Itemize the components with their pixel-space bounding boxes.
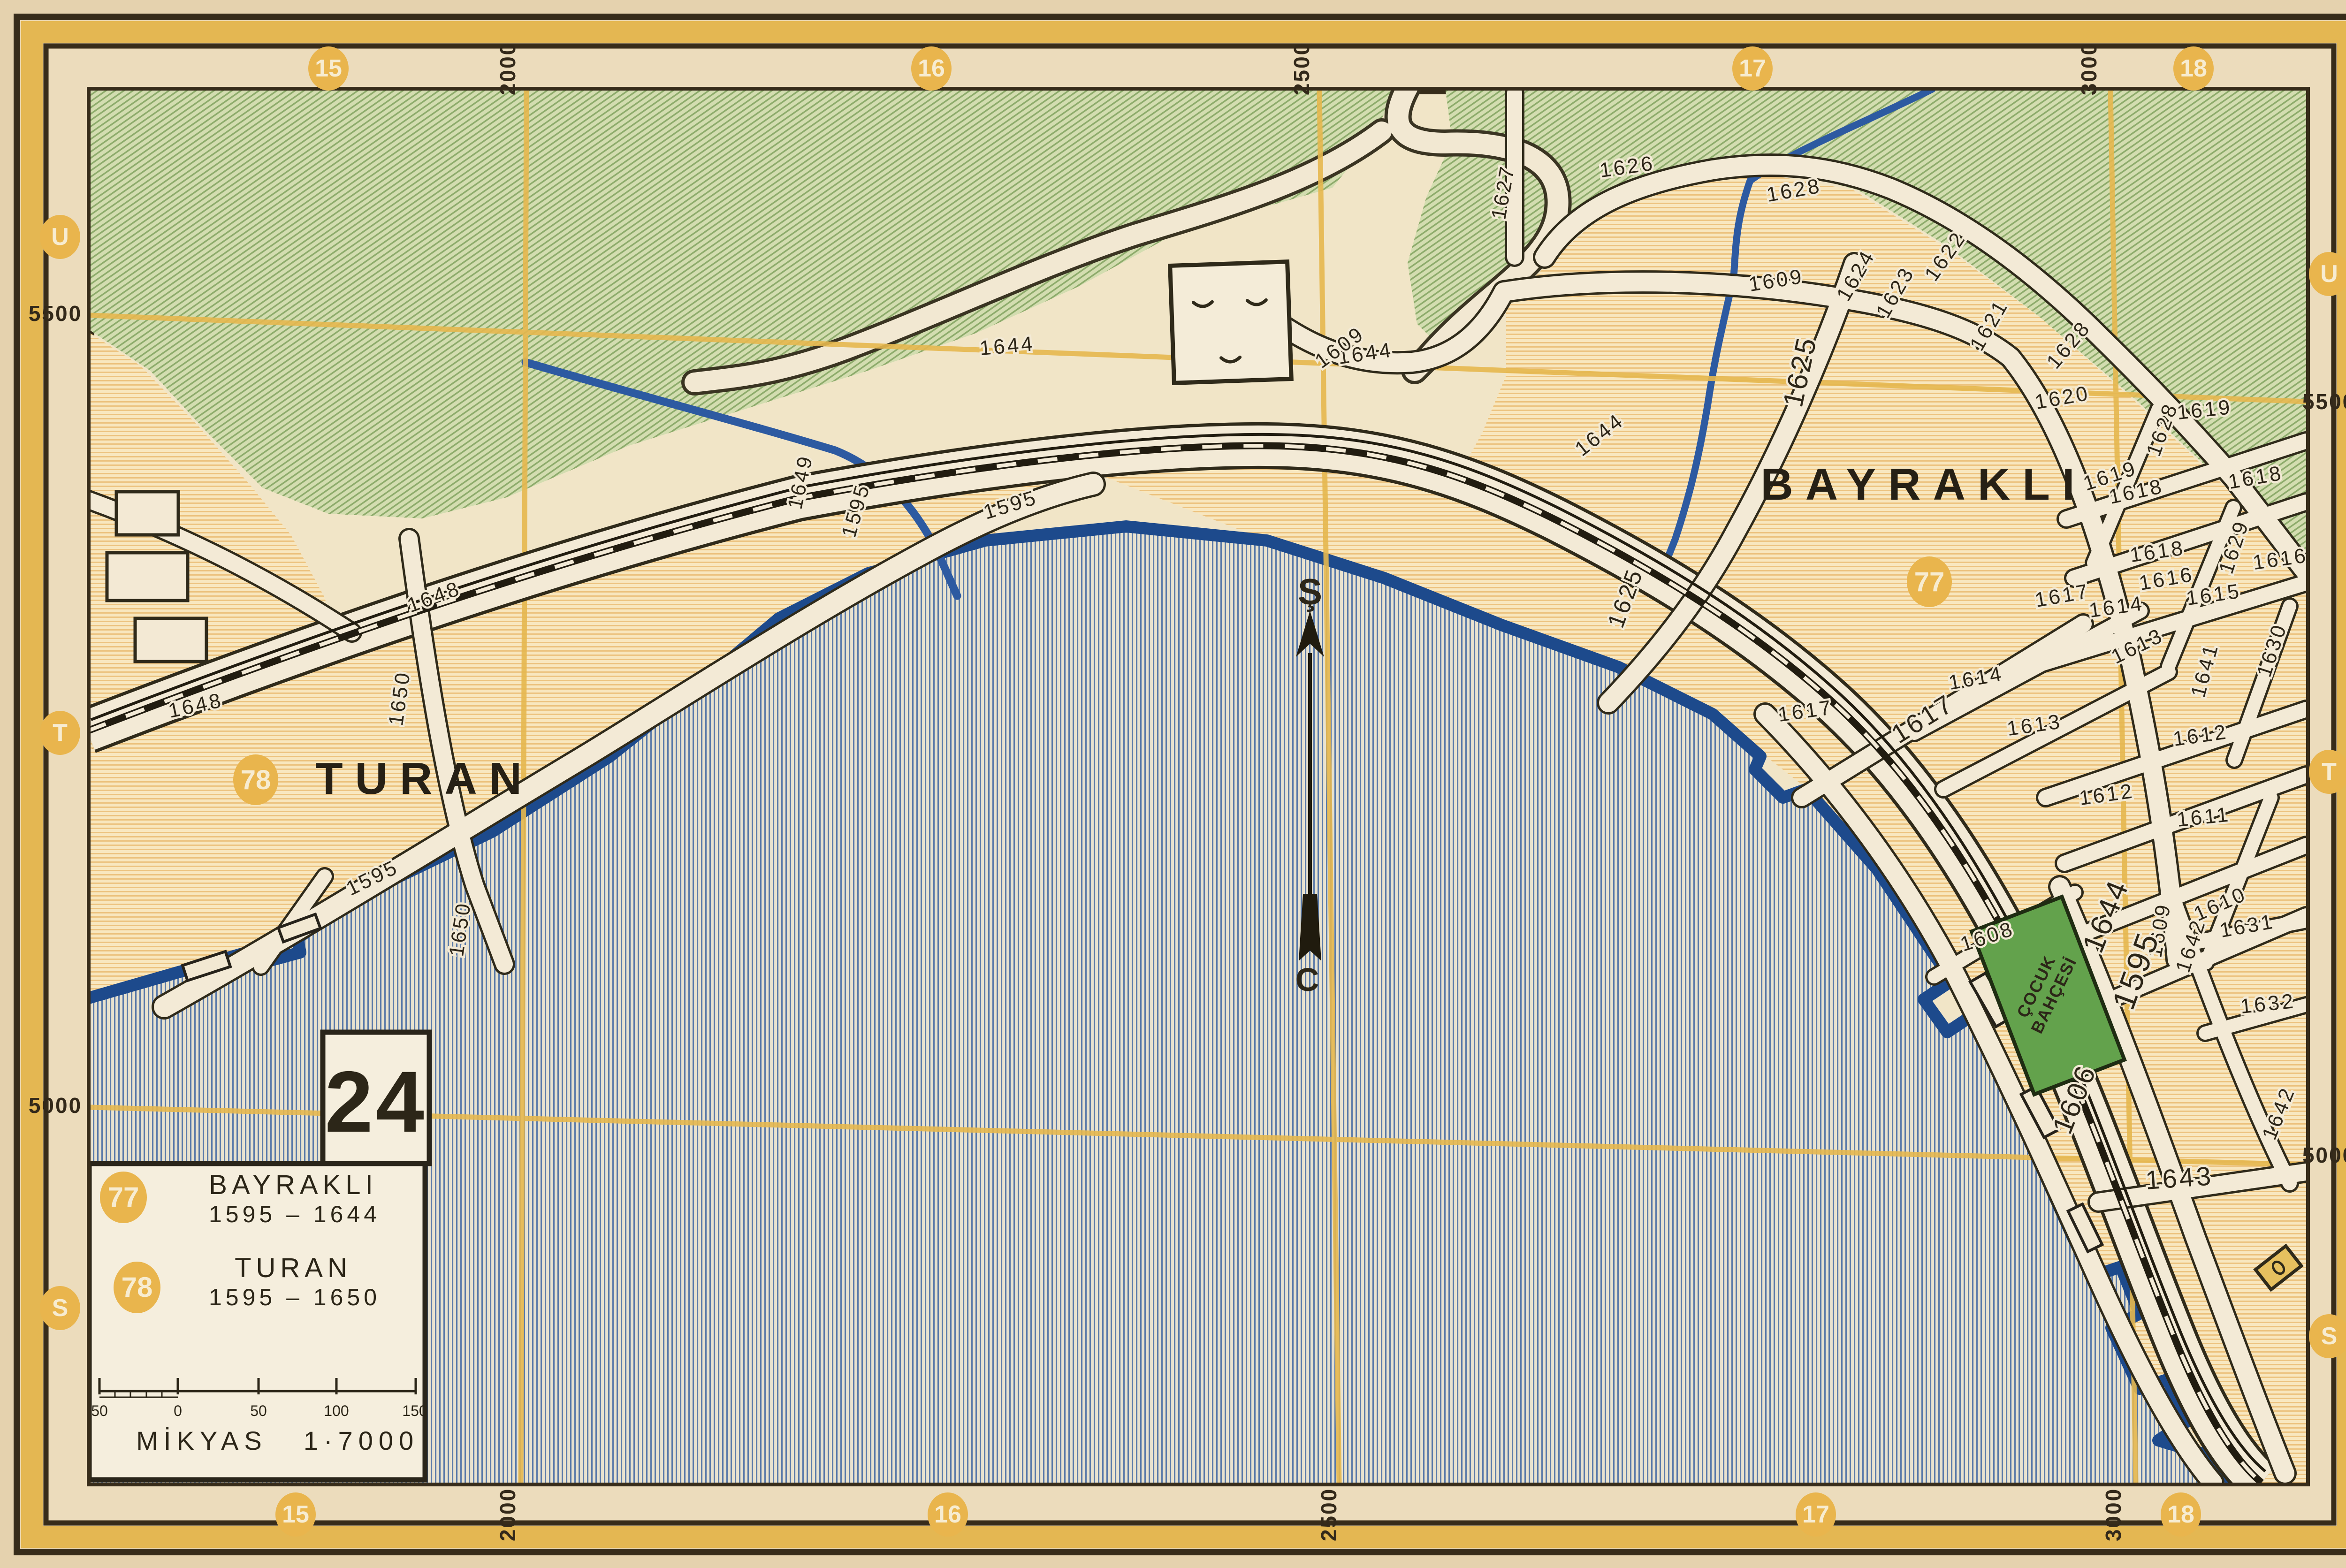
compass-south-label: C bbox=[1295, 961, 1319, 998]
grid-badge-number: S bbox=[2321, 1323, 2338, 1350]
legend-badge-78-number: 78 bbox=[122, 1271, 153, 1303]
grid-coordinate: 5500 bbox=[2302, 389, 2346, 414]
grid-coordinate: 5000 bbox=[2302, 1143, 2346, 1167]
scale-tick: 50 bbox=[250, 1402, 267, 1419]
grid-badge-number: T bbox=[53, 719, 68, 746]
scale-tick: 50 bbox=[91, 1402, 108, 1419]
street-label: 1644 bbox=[979, 332, 1036, 360]
grid-coordinate: 2000 bbox=[495, 1488, 520, 1541]
legend-entry-range: 1595 – 1650 bbox=[209, 1284, 381, 1310]
grid-badge-number: 15 bbox=[282, 1501, 309, 1528]
district-name: BAYRAKLI bbox=[1760, 459, 2087, 510]
grid-badge-number: S bbox=[52, 1294, 69, 1322]
scale-value: 1·7000 bbox=[304, 1426, 419, 1455]
grid-badge-number: U bbox=[2320, 260, 2338, 288]
street-label: 1643 bbox=[2144, 1161, 2214, 1195]
grid-coordinate: 2500 bbox=[1317, 1488, 1341, 1541]
grid-badge-number: 16 bbox=[918, 55, 945, 82]
scale-tick: 100 bbox=[324, 1402, 349, 1419]
grid-badge-number: 18 bbox=[2180, 55, 2207, 82]
grid-coordinate: 5500 bbox=[29, 301, 82, 326]
grid-coordinate: 3000 bbox=[2077, 42, 2101, 95]
legend-entry-name: BAYRAKLI bbox=[209, 1170, 377, 1200]
legend-badge-77-number: 77 bbox=[108, 1181, 139, 1213]
compass-north-label: Ş bbox=[1298, 571, 1322, 612]
map-canvas: ÇOCUKBAHÇESİ Ş C 78TURAN77BAYRAKLI 16481… bbox=[0, 0, 2346, 1568]
district-badge-number: 77 bbox=[1914, 567, 1945, 597]
grid-badge-number: 17 bbox=[1739, 55, 1766, 82]
scale-tick: 150 bbox=[402, 1402, 427, 1419]
grid-badge-number: T bbox=[2322, 758, 2337, 785]
grid-badge-number: U bbox=[51, 223, 69, 251]
grid-badge-number: 15 bbox=[315, 55, 342, 82]
grid-badge-number: 18 bbox=[2167, 1501, 2194, 1528]
square-building bbox=[1170, 262, 1292, 383]
scale-label: MİKYAS bbox=[136, 1426, 267, 1455]
sheet-number: 24 bbox=[325, 1054, 427, 1150]
grid-badge-number: 16 bbox=[934, 1501, 961, 1528]
grid-coordinate: 2000 bbox=[495, 42, 520, 95]
grid-coordinate: 2500 bbox=[1289, 42, 1314, 95]
grid-badge-number: 17 bbox=[1802, 1501, 1829, 1528]
map-sheet: ÇOCUKBAHÇESİ Ş C 78TURAN77BAYRAKLI 16481… bbox=[0, 0, 2346, 1568]
district-name: TURAN bbox=[315, 754, 534, 804]
legend-entry-range: 1595 – 1644 bbox=[209, 1201, 381, 1227]
grid-coordinate: 5000 bbox=[29, 1093, 82, 1118]
scale-tick: 0 bbox=[174, 1402, 182, 1419]
district-badge-number: 78 bbox=[241, 765, 271, 795]
legend-entry-name: TURAN bbox=[235, 1253, 352, 1283]
grid-coordinate: 3000 bbox=[2101, 1488, 2125, 1541]
